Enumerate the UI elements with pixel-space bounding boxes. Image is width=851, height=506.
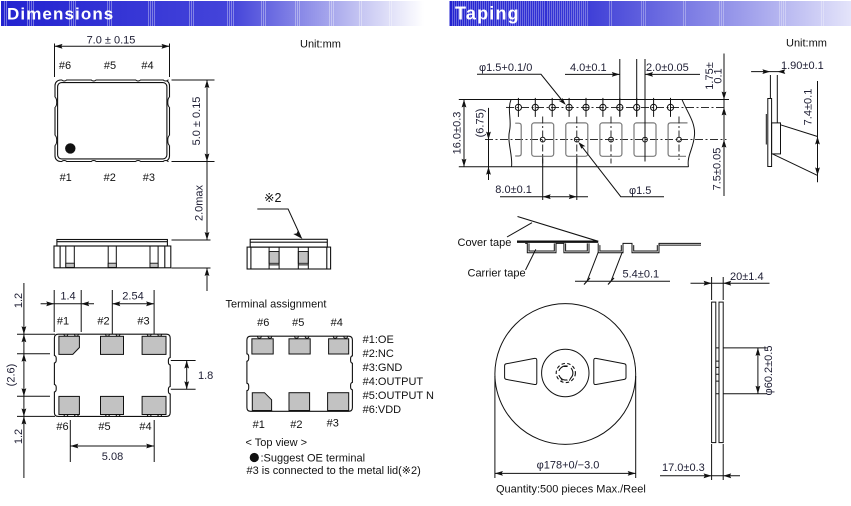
svg-text:#5: #5 — [292, 317, 304, 329]
svg-text:φ1.5: φ1.5 — [629, 185, 651, 197]
svg-text:20±1.4: 20±1.4 — [730, 271, 764, 283]
svg-text:#2: #2 — [104, 172, 116, 184]
svg-text:17.0±0.3: 17.0±0.3 — [662, 462, 705, 474]
svg-text:1.8: 1.8 — [198, 370, 213, 382]
svg-text:#5: #5 — [98, 421, 110, 433]
svg-text:#5:OUTPUT N: #5:OUTPUT N — [363, 390, 434, 402]
svg-text:#3: #3 — [143, 172, 155, 184]
svg-text:1.90±0.1: 1.90±0.1 — [781, 60, 824, 72]
svg-text:7.5±0.05: 7.5±0.05 — [712, 148, 724, 191]
svg-text:φ60.2±0.5: φ60.2±0.5 — [763, 346, 775, 396]
svg-text:Unit:mm: Unit:mm — [300, 39, 341, 51]
svg-text:Quantity:500 pieces Max./Reel: Quantity:500 pieces Max./Reel — [496, 484, 646, 496]
svg-text:1.2: 1.2 — [13, 429, 25, 444]
svg-text:#4: #4 — [141, 60, 153, 72]
svg-text:Unit:mm: Unit:mm — [786, 38, 827, 50]
svg-text:※2: ※2 — [264, 191, 281, 205]
svg-text:2.0±0.05: 2.0±0.05 — [646, 62, 689, 74]
svg-text:#1: #1 — [57, 316, 69, 328]
svg-text:#6:VDD: #6:VDD — [363, 404, 402, 416]
svg-text:Dimensions: Dimensions — [7, 5, 114, 24]
svg-text:4.0±0.1: 4.0±0.1 — [570, 62, 607, 74]
svg-text:2.0max: 2.0max — [193, 184, 205, 221]
svg-text:2.54: 2.54 — [122, 291, 143, 303]
svg-text:1.4: 1.4 — [60, 291, 75, 303]
svg-text:1.2: 1.2 — [13, 293, 25, 308]
svg-text:#6: #6 — [257, 317, 269, 329]
svg-text:(2.6): (2.6) — [5, 364, 17, 387]
svg-text:7.4±0.1: 7.4±0.1 — [803, 89, 815, 126]
svg-text:5.08: 5.08 — [102, 451, 123, 463]
svg-text:#3:GND: #3:GND — [363, 362, 403, 374]
svg-text:φ178+0/−3.0: φ178+0/−3.0 — [537, 460, 600, 472]
svg-text:Carrier tape: Carrier tape — [468, 268, 526, 280]
svg-text:φ1.5+0.1/0: φ1.5+0.1/0 — [479, 62, 532, 74]
svg-text::Suggest OE terminal: :Suggest OE terminal — [261, 453, 366, 465]
svg-text:#1: #1 — [253, 419, 265, 431]
svg-text:Terminal assignment: Terminal assignment — [226, 299, 327, 311]
svg-text:Cover tape: Cover tape — [458, 237, 512, 249]
svg-text:#1: #1 — [60, 172, 72, 184]
svg-text:#3: #3 — [327, 418, 339, 430]
svg-text:#1:OE: #1:OE — [363, 334, 394, 346]
svg-text:#5: #5 — [104, 60, 116, 72]
svg-text:8.0±0.1: 8.0±0.1 — [495, 184, 532, 196]
svg-text:#3 is connected to the metal l: #3 is connected to the metal lid(※2) — [247, 465, 421, 477]
svg-text:7.0 ± 0.15: 7.0 ± 0.15 — [87, 35, 136, 47]
svg-text:#6: #6 — [59, 60, 71, 72]
svg-text:#4:OUTPUT: #4:OUTPUT — [363, 376, 424, 388]
svg-text:#6: #6 — [56, 421, 68, 433]
svg-text:#4: #4 — [139, 421, 151, 433]
svg-text:#3: #3 — [137, 316, 149, 328]
svg-text:(6.75): (6.75) — [475, 109, 487, 138]
svg-text:< Top view >: < Top view > — [246, 437, 308, 449]
svg-text:5.4±0.1: 5.4±0.1 — [623, 269, 660, 281]
svg-text:#4: #4 — [331, 317, 343, 329]
svg-text:0.1: 0.1 — [713, 68, 725, 83]
svg-text:#2:NC: #2:NC — [363, 348, 394, 360]
svg-text:5.0 ± 0.15: 5.0 ± 0.15 — [191, 97, 203, 146]
svg-text:16.0±0.3: 16.0±0.3 — [452, 112, 464, 155]
svg-text:#2: #2 — [97, 316, 109, 328]
svg-text:Taping: Taping — [455, 4, 520, 24]
svg-text:#2: #2 — [290, 419, 302, 431]
